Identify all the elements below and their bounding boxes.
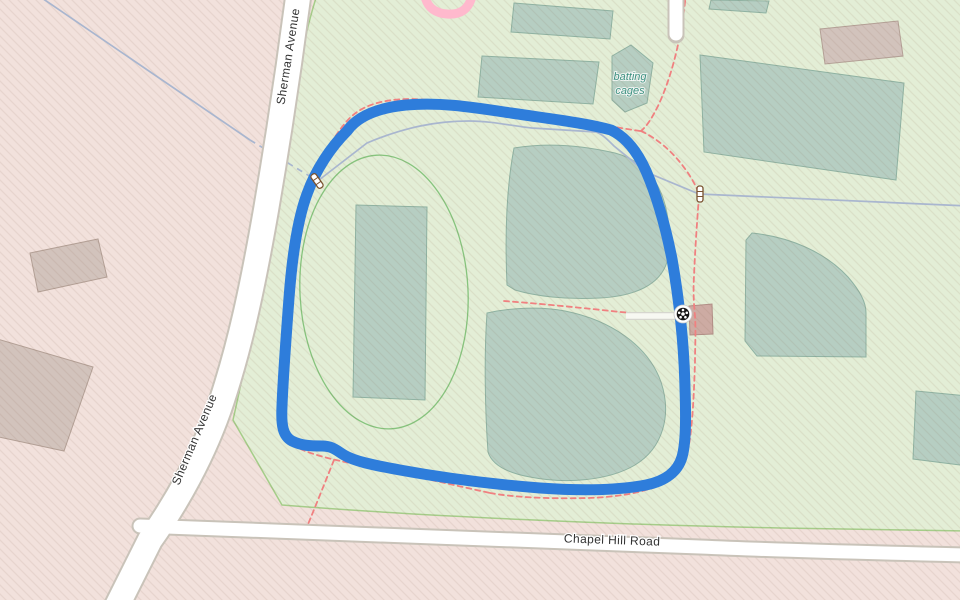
batting-cages-label: batting	[613, 71, 647, 83]
landuse-hatch-texture	[0, 0, 960, 600]
map-canvas[interactable]: Sherman Avenue Sherman Avenue Chapel Hil…	[0, 0, 960, 600]
soccer-ball-icon	[674, 305, 692, 323]
batting-cages-label: cages	[615, 85, 645, 97]
gate-icon	[697, 186, 703, 202]
